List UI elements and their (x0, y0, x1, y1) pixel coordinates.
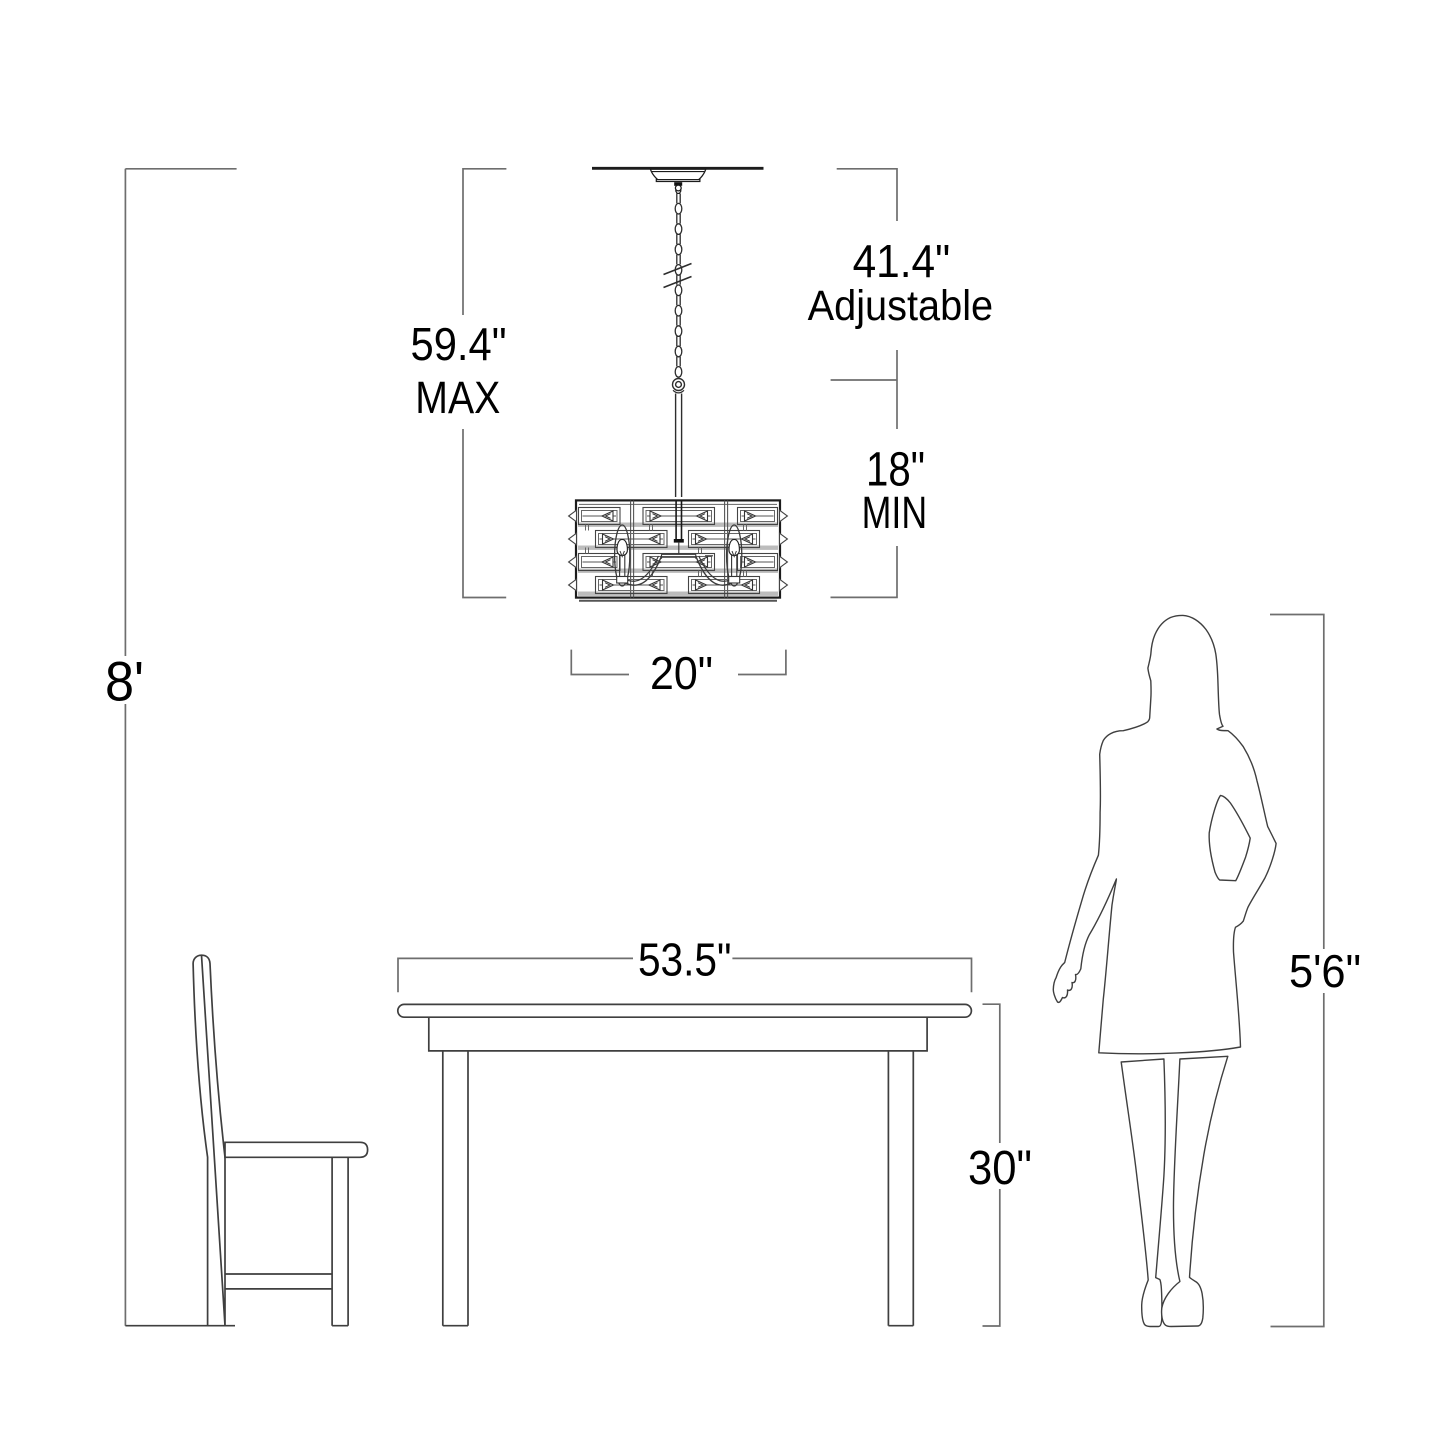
svg-text:Adjustable: Adjustable (808, 282, 994, 330)
svg-text:30": 30" (968, 1142, 1032, 1195)
svg-text:5'6": 5'6" (1289, 945, 1361, 997)
svg-text:MIN: MIN (862, 487, 928, 538)
svg-text:8': 8' (105, 650, 144, 713)
svg-text:41.4": 41.4" (853, 235, 951, 287)
svg-text:53.5": 53.5" (638, 933, 732, 985)
svg-text:59.4": 59.4" (411, 318, 507, 370)
svg-text:20": 20" (650, 647, 713, 699)
svg-text:MAX: MAX (415, 372, 500, 423)
